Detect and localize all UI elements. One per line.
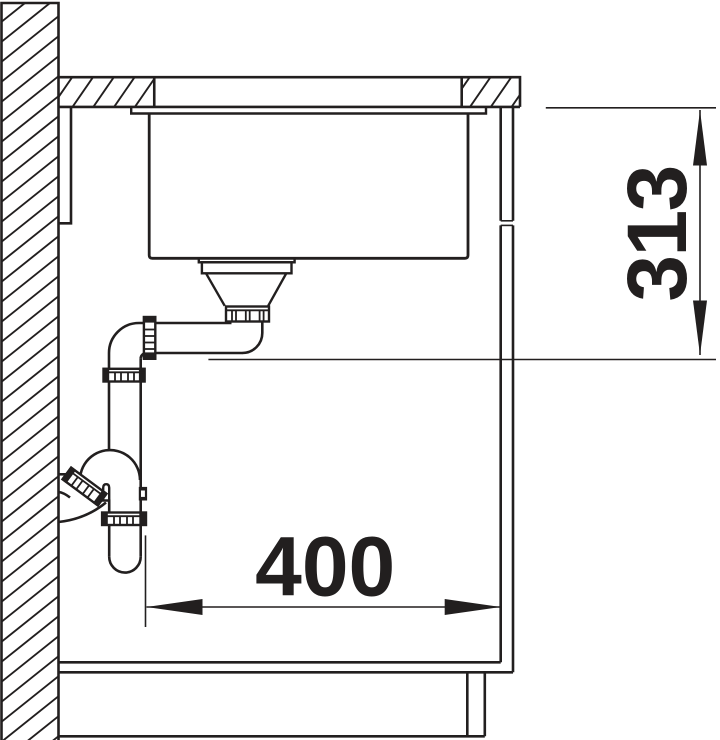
svg-text:400: 400 xyxy=(255,519,395,613)
svg-text:313: 313 xyxy=(610,166,704,301)
